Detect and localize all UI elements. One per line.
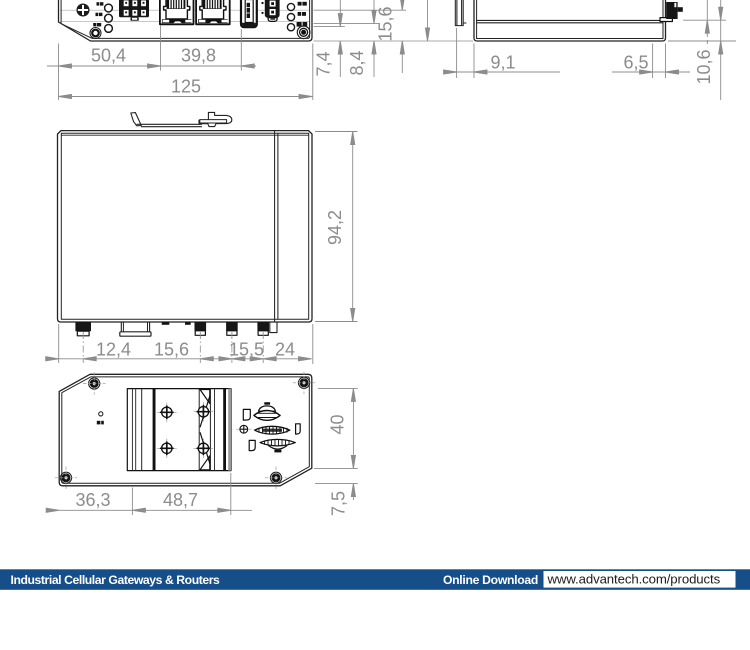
svg-text:94,2: 94,2: [325, 210, 345, 245]
svg-text:www.advantech.com/products: www.advantech.com/products: [547, 572, 721, 587]
svg-text:15,6: 15,6: [154, 340, 189, 360]
svg-text:40: 40: [328, 414, 348, 434]
svg-text:12,4: 12,4: [96, 340, 131, 360]
svg-text:6,5: 6,5: [623, 53, 648, 73]
svg-text:8,4: 8,4: [347, 50, 367, 75]
svg-text:Industrial Cellular Gateways &: Industrial Cellular Gateways & Routers: [11, 573, 221, 587]
svg-text:15,6: 15,6: [376, 6, 396, 41]
svg-text:24: 24: [275, 340, 295, 360]
svg-text:39,8: 39,8: [181, 46, 216, 66]
svg-text:10,6: 10,6: [694, 49, 714, 84]
svg-text:Online Download: Online Download: [443, 573, 538, 587]
svg-text:7,5: 7,5: [329, 491, 349, 516]
svg-text:9,1: 9,1: [490, 53, 515, 73]
svg-text:125: 125: [171, 77, 201, 97]
svg-text:7,4: 7,4: [314, 51, 334, 76]
svg-text:50,4: 50,4: [91, 46, 126, 66]
svg-text:15,5: 15,5: [229, 340, 264, 360]
svg-text:48,7: 48,7: [163, 490, 198, 510]
svg-text:36,3: 36,3: [75, 490, 110, 510]
